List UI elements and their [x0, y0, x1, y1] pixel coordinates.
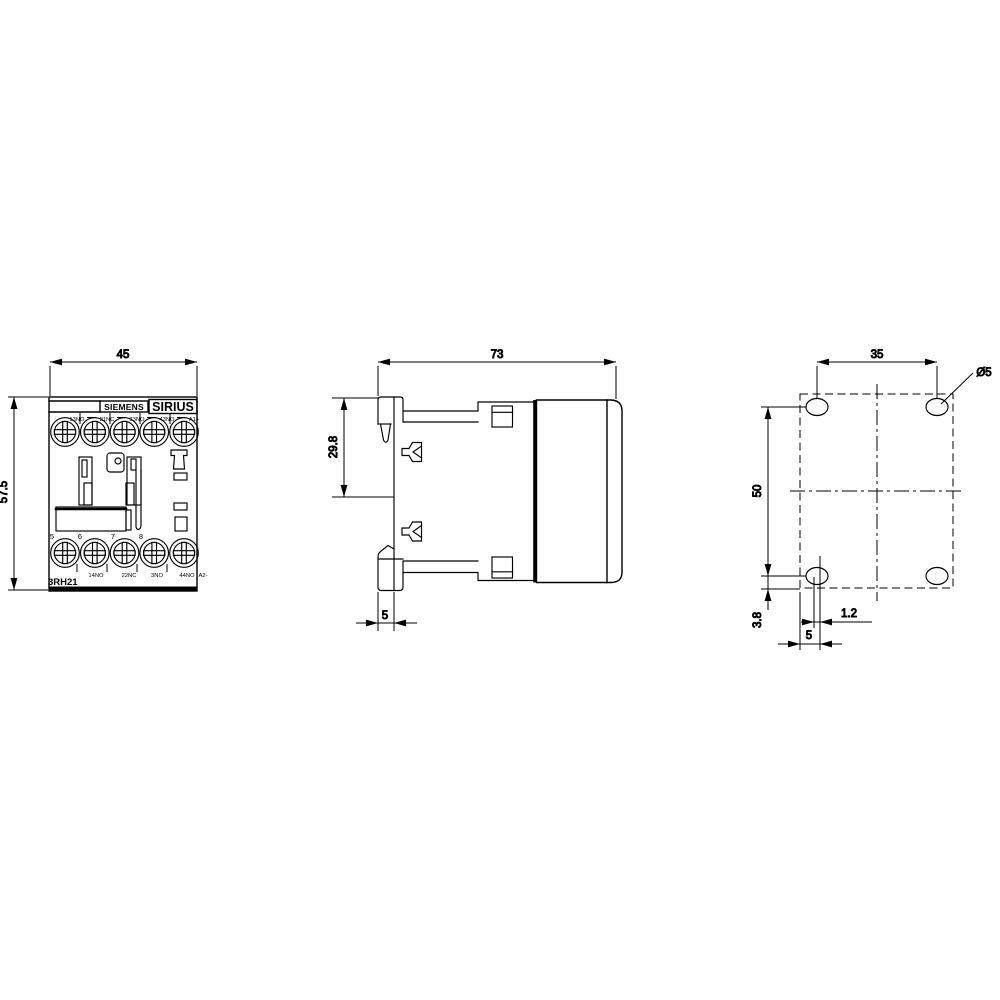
front-middle-details	[56, 450, 187, 531]
terminal-label-bottom: 22NC	[122, 573, 137, 579]
screw-terminal-icon	[110, 539, 139, 568]
terminal-label-bottom: 3NO	[151, 573, 163, 579]
side-main-body	[533, 400, 622, 583]
drill-slot-offset-dimension: 1.2	[801, 577, 872, 628]
din-clip-spring	[381, 424, 391, 442]
side-depth-dim-label: 73	[491, 349, 504, 361]
side-terminal-blocks	[492, 406, 513, 578]
terminal-label-top: 43NO	[159, 417, 175, 423]
drill-hole	[806, 568, 828, 585]
drill-bottom-offset-label: 3.8	[752, 612, 764, 628]
position-number: 8	[139, 532, 143, 541]
position-number: 5	[50, 532, 54, 541]
model-number-text: 3RH21	[48, 577, 78, 588]
screw-terminal-icon	[51, 539, 80, 568]
drill-vertical-dim-label: 50	[752, 485, 764, 498]
drill-outline	[790, 384, 962, 601]
terminal-label-bottom: 44NO	[179, 573, 195, 579]
front-width-dim-label: 45	[117, 349, 130, 361]
drill-hole-diameter-callout: Ø5	[941, 367, 992, 404]
terminal-label-top: 21NC	[100, 417, 115, 423]
drill-hole	[926, 568, 948, 585]
side-depth-dimension: 73	[378, 349, 616, 399]
dimensional-drawing-page: 45 57.5 SIEMENS SIRIUS	[0, 0, 1000, 1000]
terminal-label-top: A1+	[189, 417, 200, 423]
front-height-dimension: 57.5	[0, 397, 48, 590]
side-view: 73 29.8 5	[328, 349, 622, 631]
side-rail-depth-dimension: 5	[356, 592, 417, 631]
drill-bottom-offset-dimension: 3.8	[752, 576, 800, 628]
screw-terminal-icon	[140, 539, 169, 568]
side-latch	[402, 522, 422, 541]
siemens-logo-text: SIEMENS	[104, 402, 144, 412]
front-height-dim-label: 57.5	[0, 481, 10, 503]
front-anchor-slot	[171, 450, 187, 469]
front-label-plate	[56, 507, 126, 531]
drill-edge-distance-label: 5	[806, 630, 812, 642]
side-mounting-plate	[378, 397, 534, 591]
dimensional-drawing: 45 57.5 SIEMENS SIRIUS	[0, 0, 1000, 1000]
terminal-label-top: 13NO	[69, 417, 85, 423]
position-number: 7	[111, 532, 115, 541]
front-bottom-terminal-screws: 14NO 22NC 3NO 44NO A2-	[51, 539, 208, 579]
terminal-label-top: 33NO	[129, 417, 145, 423]
drill-hole-diameter-label: Ø5	[976, 367, 991, 379]
drill-horizontal-dim-label: 35	[871, 349, 884, 361]
screw-terminal-icon	[81, 539, 110, 568]
mounting-drill-pattern-view: 35 Ø5 50 3.8 1.2	[752, 349, 992, 650]
side-rail-dimension: 29.8	[328, 398, 394, 497]
side-rail-depth-dim-label: 5	[382, 610, 388, 622]
side-latch	[402, 443, 422, 462]
front-top-terminal-screws: 13NO 21NC 33NO 43NO A1+	[51, 413, 200, 446]
side-rail-dim-label: 29.8	[328, 436, 340, 458]
drill-hole	[806, 399, 828, 416]
sirius-logo-text: SIRIUS	[152, 400, 194, 414]
terminal-label-bottom: A2-	[198, 573, 207, 579]
front-width-dimension: 45	[50, 349, 197, 396]
drill-slot-offset-label: 1.2	[841, 608, 857, 620]
terminal-label-bottom: 14NO	[88, 573, 104, 579]
screw-terminal-icon	[170, 539, 199, 568]
front-view: 45 57.5 SIEMENS SIRIUS	[0, 349, 208, 592]
position-number: 6	[78, 532, 82, 541]
